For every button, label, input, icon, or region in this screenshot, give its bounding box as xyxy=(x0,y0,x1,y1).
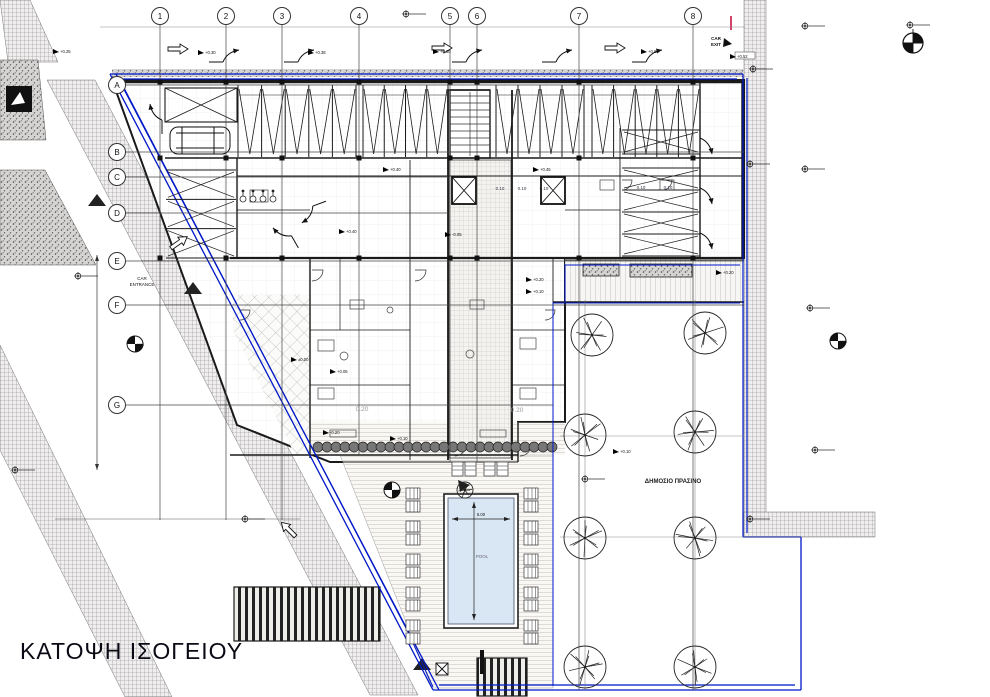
grid-bubble-label: 7 xyxy=(577,12,582,21)
sun-lounger xyxy=(452,462,463,476)
column xyxy=(357,80,362,85)
floor-plan-page: 12345678ABCDEFG +0.25+0.30+0.38+0.60+0.6… xyxy=(0,0,990,697)
flow-arrow-open xyxy=(168,44,188,54)
turn-arrow xyxy=(284,49,314,63)
elevation-marker: +0.25 xyxy=(53,49,71,54)
survey-marker xyxy=(806,304,830,312)
tree-center xyxy=(694,431,697,434)
sun-lounger xyxy=(406,488,420,499)
tree-branch xyxy=(576,657,585,667)
north-arrow-icon xyxy=(903,29,923,53)
sun-lounger xyxy=(524,488,538,499)
flag-pole xyxy=(480,650,484,674)
hedge xyxy=(484,442,494,452)
hedge xyxy=(340,442,350,452)
elevation-marker: +0.52 xyxy=(730,52,755,59)
benchmark: A108 xyxy=(127,336,144,352)
survey-marker xyxy=(581,475,605,483)
room-label: 0.10 xyxy=(518,186,527,191)
elevation-value: +0.60 xyxy=(648,49,659,54)
benchmark-label: A107 xyxy=(393,489,401,493)
building xyxy=(112,80,744,696)
grid-bubble-label: D xyxy=(114,209,120,218)
label: ENTRANCE xyxy=(130,282,155,287)
label: CAR xyxy=(711,36,721,41)
sun-lounger xyxy=(406,600,420,611)
hedge xyxy=(331,442,341,452)
tree-branch xyxy=(570,538,585,545)
grid-bubble-label: F xyxy=(115,301,120,310)
sun-lounger xyxy=(406,587,420,598)
sun-lounger xyxy=(524,534,538,545)
tree-branch xyxy=(585,435,598,440)
hedge xyxy=(529,442,539,452)
sidewalk-corner-top-left xyxy=(0,0,58,62)
grid-bubble-label: G xyxy=(114,401,120,410)
column xyxy=(357,156,362,161)
tree-branch xyxy=(585,424,600,435)
column xyxy=(357,256,362,261)
elevation-value: +0.10 xyxy=(620,449,631,454)
planter xyxy=(583,264,619,276)
benchmark: A105 xyxy=(830,333,847,349)
grid-bubble-label: 3 xyxy=(280,12,285,21)
column xyxy=(158,156,163,161)
hedge xyxy=(502,442,512,452)
grid-bubble-label: 4 xyxy=(357,12,362,21)
sun-lounger xyxy=(406,501,420,512)
tree xyxy=(571,314,613,356)
hedge xyxy=(385,442,395,452)
tree-branch xyxy=(695,659,707,667)
public-green-label: ΔΗΜΟΣΙΟ ΠΡΑΣΙΝΟ xyxy=(645,479,702,485)
sun-lounger xyxy=(524,521,538,532)
sun-lounger xyxy=(524,587,538,598)
tree xyxy=(684,312,726,354)
hedge xyxy=(493,442,503,452)
stair-main-south xyxy=(234,587,380,641)
tree-branch xyxy=(571,429,585,435)
sun-lounger xyxy=(465,462,476,476)
tree-branch xyxy=(585,667,595,679)
tree-branch xyxy=(569,667,585,671)
elevation-value: +0.52 xyxy=(737,54,748,59)
tree-branch xyxy=(678,659,695,667)
column xyxy=(224,256,229,261)
column xyxy=(158,256,163,261)
tree-center xyxy=(591,334,594,337)
tree-branch xyxy=(587,322,592,335)
stipple-patch-b xyxy=(0,170,96,265)
grid-bubble-label: 2 xyxy=(224,12,229,21)
tree-branch xyxy=(695,418,703,432)
tree-branch xyxy=(571,435,585,446)
elevation-value: -0.20 xyxy=(330,430,340,435)
tree-branch xyxy=(701,333,705,347)
tree-center xyxy=(584,537,587,540)
hedge xyxy=(403,442,413,452)
turn-arrow xyxy=(542,49,572,63)
survey-marker xyxy=(74,272,98,280)
hedge xyxy=(475,442,485,452)
tree-branch xyxy=(580,667,585,679)
elevation-value: +0.20 xyxy=(723,270,734,275)
hedge xyxy=(376,442,386,452)
grid-bubble-label: B xyxy=(114,148,119,157)
hedge xyxy=(439,442,449,452)
elevation-value: +0.38 xyxy=(315,50,326,55)
elevation-value: +0.60 xyxy=(440,49,451,54)
drain-box xyxy=(436,663,448,675)
column xyxy=(577,256,582,261)
elevation-value: +0.45 xyxy=(540,167,551,172)
sidewalk-band-right-corner xyxy=(744,512,875,537)
tree-branch xyxy=(690,521,695,538)
tree-branch xyxy=(692,320,705,333)
column xyxy=(224,156,229,161)
column xyxy=(280,256,285,261)
column xyxy=(475,80,480,85)
hedge xyxy=(322,442,332,452)
survey-marker xyxy=(906,21,930,29)
survey-marker xyxy=(241,515,265,523)
elevation-marker: +0.10 xyxy=(613,449,631,454)
hedge xyxy=(367,442,377,452)
tree-branch xyxy=(705,317,710,333)
canopy-marker xyxy=(88,194,106,206)
car-exit-arrow xyxy=(723,38,732,47)
car-exit-label: CAREXIT xyxy=(711,36,732,47)
room-label: 0.10 xyxy=(664,185,673,190)
column xyxy=(448,256,453,261)
column xyxy=(691,256,696,261)
tree-center xyxy=(694,537,697,540)
column xyxy=(577,156,582,161)
grid-bubble-label: 6 xyxy=(475,12,480,21)
tree-branch xyxy=(705,333,718,345)
elevation-value: -0.05 xyxy=(452,232,462,237)
sun-lounger xyxy=(406,633,420,644)
grid-bubble-label: 1 xyxy=(158,12,163,21)
tree-branch xyxy=(585,538,598,548)
tree-branch xyxy=(689,432,695,445)
sun-lounger xyxy=(524,554,538,565)
sun-lounger xyxy=(406,521,420,532)
elevation-value: +0.10 xyxy=(533,289,544,294)
tree-branch xyxy=(705,327,724,333)
column xyxy=(475,256,480,261)
pool-label: POOL xyxy=(476,554,489,559)
tree-center xyxy=(584,434,587,437)
grid-bubble-label: A xyxy=(114,81,120,90)
sun-lounger xyxy=(406,554,420,565)
label: CAR xyxy=(137,276,147,281)
hedge xyxy=(520,442,530,452)
tree-branch xyxy=(695,527,705,538)
grid-bubble-label: E xyxy=(114,257,119,266)
column xyxy=(280,80,285,85)
hedge xyxy=(313,442,323,452)
sun-lounger xyxy=(497,462,508,476)
tree-center xyxy=(584,666,587,669)
hedge xyxy=(412,442,422,452)
sun-lounger xyxy=(484,462,495,476)
tree-center xyxy=(704,332,707,335)
tree-branch xyxy=(695,538,700,556)
grid-bubble-label: C xyxy=(114,173,120,182)
column xyxy=(448,156,453,161)
hedge xyxy=(349,442,359,452)
column xyxy=(448,80,453,85)
tree-branch xyxy=(592,335,597,346)
tree-branch xyxy=(695,667,706,673)
column xyxy=(475,156,480,161)
hedge xyxy=(358,442,368,452)
floor-plan-canvas: 12345678ABCDEFG +0.25+0.30+0.38+0.60+0.6… xyxy=(0,0,990,697)
grid-bubble-label: 8 xyxy=(691,12,696,21)
tree-branch xyxy=(693,333,705,336)
hedge xyxy=(457,442,467,452)
sun-lounger xyxy=(524,501,538,512)
elevation-value: +0.20 xyxy=(533,277,544,282)
elevation-value: ±0.00 xyxy=(298,357,309,362)
drawing-title: ΚΑΤΟΨΗ ΙΣΟΓΕΙΟΥ xyxy=(20,638,243,665)
column xyxy=(280,156,285,161)
column xyxy=(224,80,229,85)
hedge xyxy=(448,442,458,452)
north-boundary-planting xyxy=(112,69,744,77)
benchmark-label: A108 xyxy=(136,343,144,347)
area-mark: 0.20 xyxy=(511,407,524,414)
tree-branch xyxy=(686,417,695,432)
hedge xyxy=(394,442,404,452)
survey-marker xyxy=(402,10,426,18)
hedge xyxy=(547,442,557,452)
planter xyxy=(630,264,692,277)
sun-lounger xyxy=(406,620,420,631)
tree-center xyxy=(694,666,697,669)
hedge xyxy=(466,442,476,452)
column xyxy=(158,80,163,85)
area-mark: 0.20 xyxy=(356,406,369,413)
hedge xyxy=(421,442,431,452)
hedge xyxy=(511,442,521,452)
room-label: 0.10 xyxy=(496,186,505,191)
sun-lounger xyxy=(524,600,538,611)
flow-arrow-open xyxy=(605,43,625,53)
elevation-value: +0.25 xyxy=(60,49,71,54)
column xyxy=(691,156,696,161)
column xyxy=(691,80,696,85)
elevation-value: +0.05 xyxy=(337,369,348,374)
grid-bubble-label: 5 xyxy=(448,12,453,21)
benchmark-label: A105 xyxy=(839,340,847,344)
turn-arrow xyxy=(452,49,482,63)
column xyxy=(577,80,582,85)
elevation-marker: +0.30 xyxy=(198,50,216,55)
tree-branch xyxy=(695,432,704,446)
tree-branch xyxy=(581,335,592,349)
sun-lounger xyxy=(524,633,538,644)
elevator-1 xyxy=(452,177,476,204)
hedge xyxy=(430,442,440,452)
elevation-value: +0.30 xyxy=(205,50,216,55)
survey-marker xyxy=(801,165,825,173)
elevation-value: +0.40 xyxy=(390,167,401,172)
room-label: 0.10 xyxy=(540,186,549,191)
pool-dim-value: 5.00 xyxy=(477,512,486,517)
sun-lounger xyxy=(524,567,538,578)
tree-branch xyxy=(686,538,695,548)
elevation-marker: +0.60 xyxy=(641,49,659,54)
tree-center xyxy=(464,489,467,492)
room-label: 0.10 xyxy=(637,185,646,190)
sun-lounger xyxy=(406,567,420,578)
survey-marker xyxy=(801,22,825,30)
sun-lounger xyxy=(524,620,538,631)
survey-marker xyxy=(811,446,835,454)
tree-branch xyxy=(592,321,602,335)
sun-lounger xyxy=(406,534,420,545)
elevation-value: +0.10 xyxy=(397,436,408,441)
label: EXIT xyxy=(711,42,721,47)
hedge xyxy=(538,442,548,452)
elevation-value: +0.40 xyxy=(346,229,357,234)
